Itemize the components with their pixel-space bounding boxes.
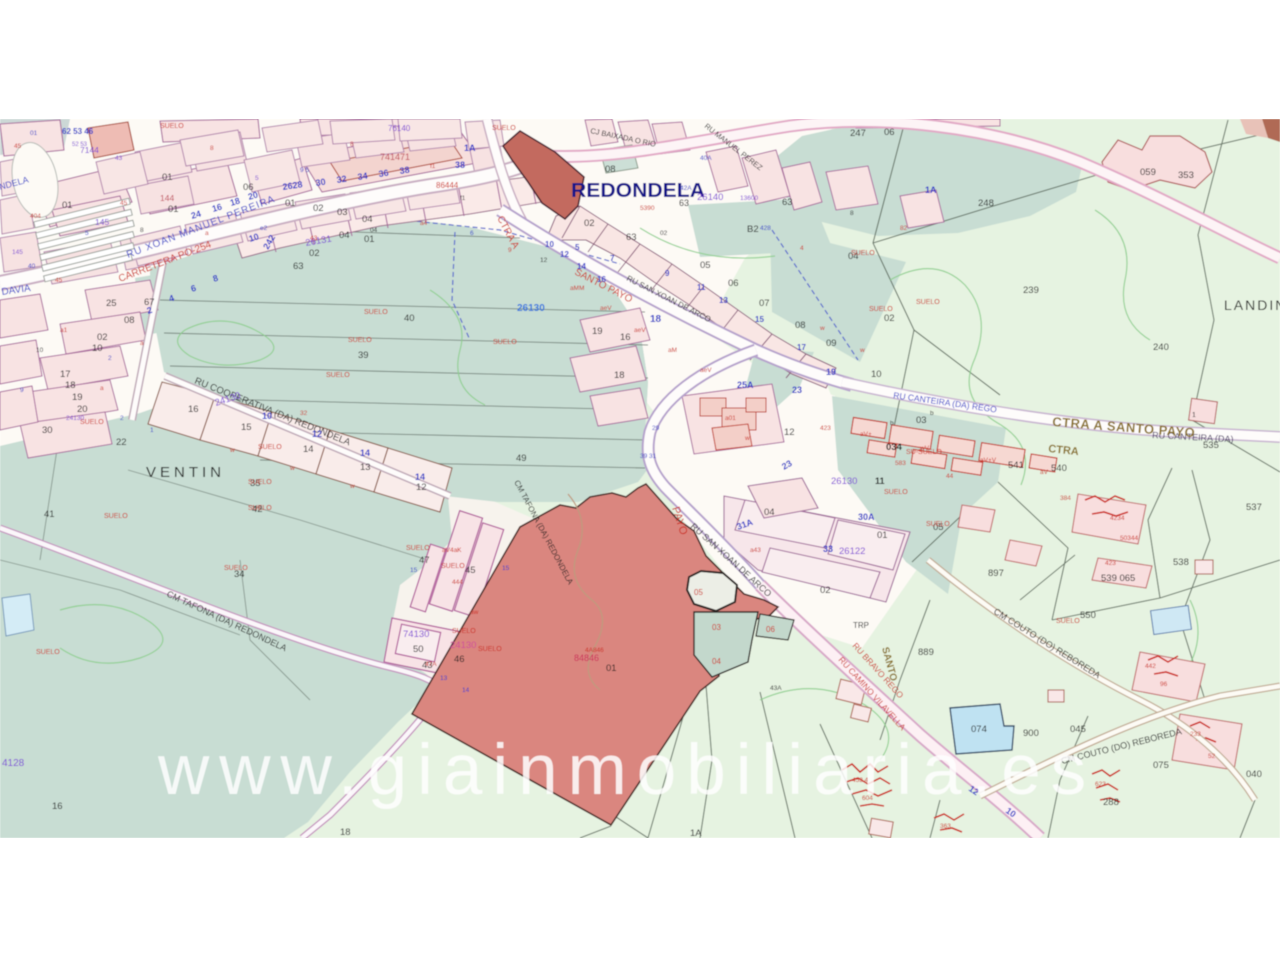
svg-text:8: 8: [850, 210, 854, 217]
svg-text:540: 540: [1051, 463, 1067, 474]
svg-text:623: 623: [1095, 781, 1106, 788]
svg-text:SUELO: SUELO: [452, 628, 476, 635]
svg-text:14: 14: [303, 444, 314, 455]
svg-text:16: 16: [188, 404, 199, 415]
svg-text:b: b: [890, 420, 894, 427]
svg-text:49: 49: [516, 453, 527, 464]
svg-text:144: 144: [160, 193, 174, 203]
svg-text:26122: 26122: [839, 546, 865, 557]
svg-text:96: 96: [1160, 681, 1168, 688]
svg-text:SUELO: SUELO: [348, 337, 372, 344]
svg-text:9 5: 9 5: [300, 167, 309, 174]
svg-text:14: 14: [360, 448, 370, 458]
svg-text:SUELO: SUELO: [492, 125, 516, 132]
svg-text:4128: 4128: [2, 758, 25, 769]
svg-text:363: 363: [940, 823, 951, 830]
svg-text:034: 034: [886, 442, 903, 453]
svg-text:f1: f1: [430, 163, 436, 170]
svg-text:42A: 42A: [680, 185, 692, 192]
svg-text:SUELO: SUELO: [851, 250, 875, 257]
svg-text:29: 29: [652, 425, 660, 432]
svg-text:16: 16: [620, 332, 631, 343]
svg-text:SUELO: SUELO: [248, 505, 272, 512]
svg-text:SUELO: SUELO: [104, 513, 128, 520]
svg-text:84846: 84846: [574, 653, 599, 663]
svg-text:14: 14: [415, 472, 425, 482]
svg-text:02: 02: [660, 230, 668, 237]
svg-text:14: 14: [462, 687, 470, 694]
svg-text:SUELO: SUELO: [869, 306, 893, 313]
svg-text:2: 2: [120, 415, 124, 422]
svg-text:4: 4: [800, 245, 804, 252]
svg-text:aeV: aeV: [700, 367, 712, 374]
svg-text:26130: 26130: [517, 303, 545, 314]
svg-text:248: 248: [978, 198, 994, 209]
svg-text:01: 01: [168, 204, 179, 215]
svg-text:74130: 74130: [403, 629, 429, 640]
svg-text:52: 52: [1208, 753, 1216, 760]
svg-text:SUELO: SUELO: [478, 646, 502, 653]
svg-text:02: 02: [309, 248, 320, 259]
svg-text:wV: wV: [919, 445, 930, 452]
svg-text:18: 18: [340, 827, 351, 838]
svg-text:10: 10: [262, 411, 272, 421]
svg-text:a4: a4: [420, 220, 428, 227]
svg-text:404: 404: [30, 213, 41, 220]
svg-text:13: 13: [440, 675, 448, 682]
svg-text:15: 15: [410, 567, 418, 574]
svg-text:14: 14: [577, 262, 586, 271]
svg-text:247: 247: [850, 128, 866, 139]
svg-text:059: 059: [1140, 167, 1156, 178]
svg-text:e2: e2: [260, 225, 268, 232]
svg-text:63: 63: [626, 232, 637, 243]
svg-text:www.giainmobiliaria.es: www.giainmobiliaria.es: [157, 731, 1096, 810]
svg-text:583: 583: [895, 460, 906, 467]
svg-text:537: 537: [1246, 502, 1262, 513]
svg-text:145: 145: [12, 249, 23, 256]
svg-text:9: 9: [508, 247, 512, 254]
svg-text:SUELO: SUELO: [326, 372, 350, 379]
svg-text:040: 040: [1246, 769, 1262, 780]
svg-text:538: 538: [1173, 557, 1189, 568]
svg-text:33: 33: [823, 544, 833, 554]
svg-text:8: 8: [350, 141, 354, 148]
svg-text:1: 1: [150, 427, 154, 434]
svg-text:2: 2: [108, 355, 112, 362]
svg-text:12: 12: [312, 429, 322, 439]
svg-text:01: 01: [285, 198, 296, 209]
svg-text:34: 34: [357, 171, 368, 182]
svg-text:535: 535: [1203, 440, 1219, 451]
svg-text:SUELO: SUELO: [1056, 618, 1080, 625]
svg-text:09: 09: [826, 338, 837, 349]
svg-text:26130: 26130: [831, 476, 857, 487]
svg-text:11: 11: [697, 283, 706, 292]
svg-text:18: 18: [614, 370, 625, 381]
svg-text:SUELO: SUELO: [364, 309, 388, 316]
svg-text:23: 23: [792, 385, 802, 395]
svg-text:18: 18: [650, 314, 662, 325]
svg-text:62 53 46: 62 53 46: [62, 127, 94, 136]
svg-text:1A: 1A: [464, 143, 476, 153]
svg-text:w: w: [744, 435, 750, 442]
svg-text:550: 550: [1080, 610, 1096, 621]
svg-text:a: a: [205, 230, 209, 237]
svg-text:428: 428: [760, 225, 771, 232]
svg-text:63: 63: [679, 198, 689, 208]
svg-text:889: 889: [918, 647, 934, 658]
svg-text:16: 16: [52, 801, 63, 812]
svg-text:SUELO: SUELO: [248, 479, 272, 486]
svg-text:17: 17: [60, 369, 71, 380]
svg-text:05: 05: [694, 588, 703, 597]
svg-text:06: 06: [766, 625, 775, 634]
svg-text:08: 08: [795, 320, 806, 331]
svg-text:50344: 50344: [1120, 535, 1138, 542]
svg-text:30: 30: [315, 177, 326, 188]
svg-text:12: 12: [560, 250, 569, 259]
svg-text:10: 10: [871, 369, 882, 380]
svg-text:32: 32: [336, 174, 347, 185]
svg-text:04: 04: [370, 227, 378, 234]
svg-text:w: w: [859, 347, 865, 354]
svg-text:239: 239: [1023, 285, 1039, 296]
svg-text:07: 07: [759, 298, 770, 309]
svg-text:8: 8: [140, 227, 144, 234]
svg-text:36: 36: [378, 168, 389, 179]
svg-text:442: 442: [1145, 663, 1156, 670]
svg-text:41: 41: [44, 509, 55, 520]
svg-text:SUELO: SUELO: [224, 565, 248, 572]
svg-text:18: 18: [65, 380, 76, 391]
svg-text:aV+V: aV+V: [980, 457, 997, 464]
svg-text:19: 19: [72, 392, 83, 403]
svg-text:1A: 1A: [925, 185, 937, 195]
svg-text:b: b: [930, 410, 934, 417]
svg-text:15: 15: [755, 315, 764, 324]
svg-text:SUELO: SUELO: [258, 444, 282, 451]
svg-text:4234: 4234: [1110, 515, 1125, 522]
svg-text:02: 02: [313, 203, 324, 214]
svg-text:02: 02: [584, 218, 595, 229]
svg-text:82: 82: [900, 225, 908, 232]
svg-text:w: w: [289, 465, 295, 472]
svg-text:aeV: aeV: [634, 327, 646, 334]
svg-text:45: 45: [14, 143, 22, 150]
svg-text:02: 02: [884, 313, 895, 324]
svg-text:B2: B2: [747, 224, 759, 235]
svg-text:12: 12: [416, 482, 427, 493]
svg-text:63: 63: [293, 261, 304, 272]
svg-text:12: 12: [540, 257, 548, 264]
svg-text:06: 06: [728, 278, 739, 289]
svg-text:897: 897: [988, 568, 1004, 579]
svg-text:aM: aM: [668, 347, 677, 354]
svg-text:a: a: [140, 340, 144, 347]
svg-text:39 31: 39 31: [640, 453, 657, 460]
svg-text:47A: 47A: [425, 661, 437, 668]
svg-text:38: 38: [455, 160, 465, 170]
svg-text:05: 05: [700, 260, 711, 271]
svg-text:SUELO: SUELO: [406, 545, 430, 552]
svg-text:44: 44: [946, 473, 954, 480]
svg-text:32: 32: [300, 410, 308, 417]
svg-text:075: 075: [1153, 760, 1169, 771]
svg-text:SUELO: SUELO: [916, 299, 940, 306]
svg-text:76140: 76140: [388, 124, 411, 133]
svg-text:15: 15: [502, 565, 510, 572]
svg-text:47: 47: [419, 555, 430, 566]
svg-text:01: 01: [162, 172, 173, 183]
svg-text:10: 10: [92, 343, 103, 354]
svg-text:67: 67: [144, 297, 155, 308]
svg-text:30: 30: [42, 425, 53, 436]
svg-text:5: 5: [575, 243, 580, 252]
svg-text:aV: aV: [1040, 469, 1049, 476]
svg-text:f1: f1: [460, 195, 466, 202]
svg-text:13600: 13600: [740, 195, 758, 202]
svg-text:01: 01: [877, 530, 888, 541]
svg-text:45: 45: [55, 277, 63, 284]
svg-text:46: 46: [454, 654, 465, 665]
svg-text:25A: 25A: [737, 380, 754, 390]
svg-text:aw: aw: [470, 609, 479, 616]
svg-text:423: 423: [820, 425, 831, 432]
svg-text:288: 288: [1103, 797, 1119, 808]
svg-text:aV4aK: aV4aK: [442, 547, 462, 554]
svg-text:03: 03: [337, 207, 348, 218]
svg-text:SUELO: SUELO: [160, 123, 184, 130]
svg-text:02: 02: [97, 332, 108, 343]
svg-text:LANDIN: LANDIN: [1224, 297, 1280, 313]
svg-text:10: 10: [545, 240, 554, 249]
svg-text:25: 25: [106, 298, 117, 309]
svg-text:7: 7: [610, 254, 615, 263]
svg-text:w: w: [349, 483, 355, 490]
svg-text:1A: 1A: [690, 828, 702, 839]
svg-text:40: 40: [28, 263, 36, 270]
svg-text:423: 423: [1105, 560, 1116, 567]
svg-text:40A: 40A: [700, 155, 712, 162]
svg-text:240: 240: [1153, 342, 1169, 353]
svg-text:30A: 30A: [858, 512, 875, 522]
svg-text:43A: 43A: [770, 685, 782, 692]
svg-text:SUELO: SUELO: [441, 563, 465, 570]
svg-text:20: 20: [77, 404, 88, 415]
svg-text:01: 01: [30, 130, 38, 137]
svg-text:01: 01: [62, 200, 73, 211]
svg-text:06: 06: [884, 127, 895, 138]
svg-text:24130: 24130: [450, 640, 476, 651]
svg-text:26140: 26140: [697, 192, 723, 203]
svg-text:VENTIN: VENTIN: [146, 464, 225, 481]
svg-text:a1: a1: [60, 327, 68, 334]
svg-text:aV+: aV+: [860, 431, 872, 438]
svg-text:06: 06: [243, 182, 254, 193]
svg-text:12: 12: [784, 427, 795, 438]
svg-text:17: 17: [797, 343, 806, 352]
svg-text:a43: a43: [750, 547, 761, 554]
svg-text:15: 15: [241, 422, 252, 433]
svg-text:13: 13: [719, 296, 728, 305]
svg-text:SUELO: SUELO: [884, 489, 908, 496]
svg-text:SUELO: SUELO: [493, 339, 517, 346]
svg-text:08: 08: [605, 164, 616, 175]
svg-text:03: 03: [712, 623, 721, 632]
svg-text:a01: a01: [725, 415, 736, 422]
svg-text:39: 39: [358, 350, 369, 361]
svg-text:233: 233: [1190, 731, 1201, 738]
svg-text:4A846: 4A846: [585, 647, 604, 654]
svg-text:5: 5: [85, 230, 89, 237]
svg-text:a: a: [100, 385, 104, 392]
svg-text:03: 03: [916, 415, 927, 426]
svg-text:444: 444: [452, 579, 463, 586]
svg-text:8: 8: [210, 145, 214, 152]
svg-text:aMM: aMM: [570, 285, 584, 292]
svg-text:04: 04: [764, 507, 775, 518]
svg-text:40: 40: [404, 313, 415, 324]
svg-text:541: 541: [1008, 460, 1024, 471]
svg-text:04: 04: [362, 214, 373, 225]
svg-text:01: 01: [606, 663, 617, 674]
svg-text:11: 11: [875, 476, 885, 486]
svg-text:145: 145: [95, 217, 109, 227]
svg-text:1: 1: [1192, 412, 1196, 419]
svg-text:9: 9: [665, 269, 670, 278]
svg-text:43: 43: [310, 235, 318, 242]
svg-text:aeV: aeV: [600, 305, 612, 312]
svg-text:86444: 86444: [436, 181, 459, 190]
svg-text:741471: 741471: [380, 152, 410, 162]
svg-text:50: 50: [413, 644, 424, 655]
svg-text:24130: 24130: [66, 415, 84, 422]
svg-text:63: 63: [782, 197, 793, 208]
svg-text:13: 13: [360, 462, 371, 473]
svg-text:SUELO: SUELO: [926, 521, 950, 528]
svg-text:52 53: 52 53: [72, 142, 88, 148]
svg-text:04: 04: [339, 230, 350, 241]
svg-text:08: 08: [124, 315, 135, 326]
svg-text:19: 19: [592, 326, 603, 337]
svg-text:TRP: TRP: [853, 621, 869, 630]
svg-text:04: 04: [712, 657, 721, 666]
svg-text:45: 45: [465, 565, 476, 576]
svg-text:w: w: [229, 447, 235, 454]
svg-text:16: 16: [597, 275, 606, 284]
svg-text:SUELO: SUELO: [36, 649, 60, 656]
svg-text:6: 6: [470, 230, 474, 237]
svg-text:384: 384: [1060, 495, 1071, 502]
svg-text:w: w: [819, 325, 825, 332]
svg-text:19: 19: [826, 367, 836, 377]
svg-text:539 065: 539 065: [1101, 573, 1135, 584]
svg-text:02: 02: [820, 585, 831, 596]
svg-text:43: 43: [115, 155, 123, 162]
svg-text:01: 01: [364, 234, 375, 245]
svg-text:45: 45: [120, 200, 128, 207]
svg-text:353: 353: [1178, 170, 1194, 181]
svg-text:22: 22: [116, 437, 127, 448]
svg-text:10: 10: [36, 347, 44, 354]
svg-text:5390: 5390: [640, 205, 655, 212]
svg-text:38: 38: [399, 165, 410, 176]
svg-text:5: 5: [255, 175, 259, 182]
svg-text:9: 9: [20, 387, 24, 394]
